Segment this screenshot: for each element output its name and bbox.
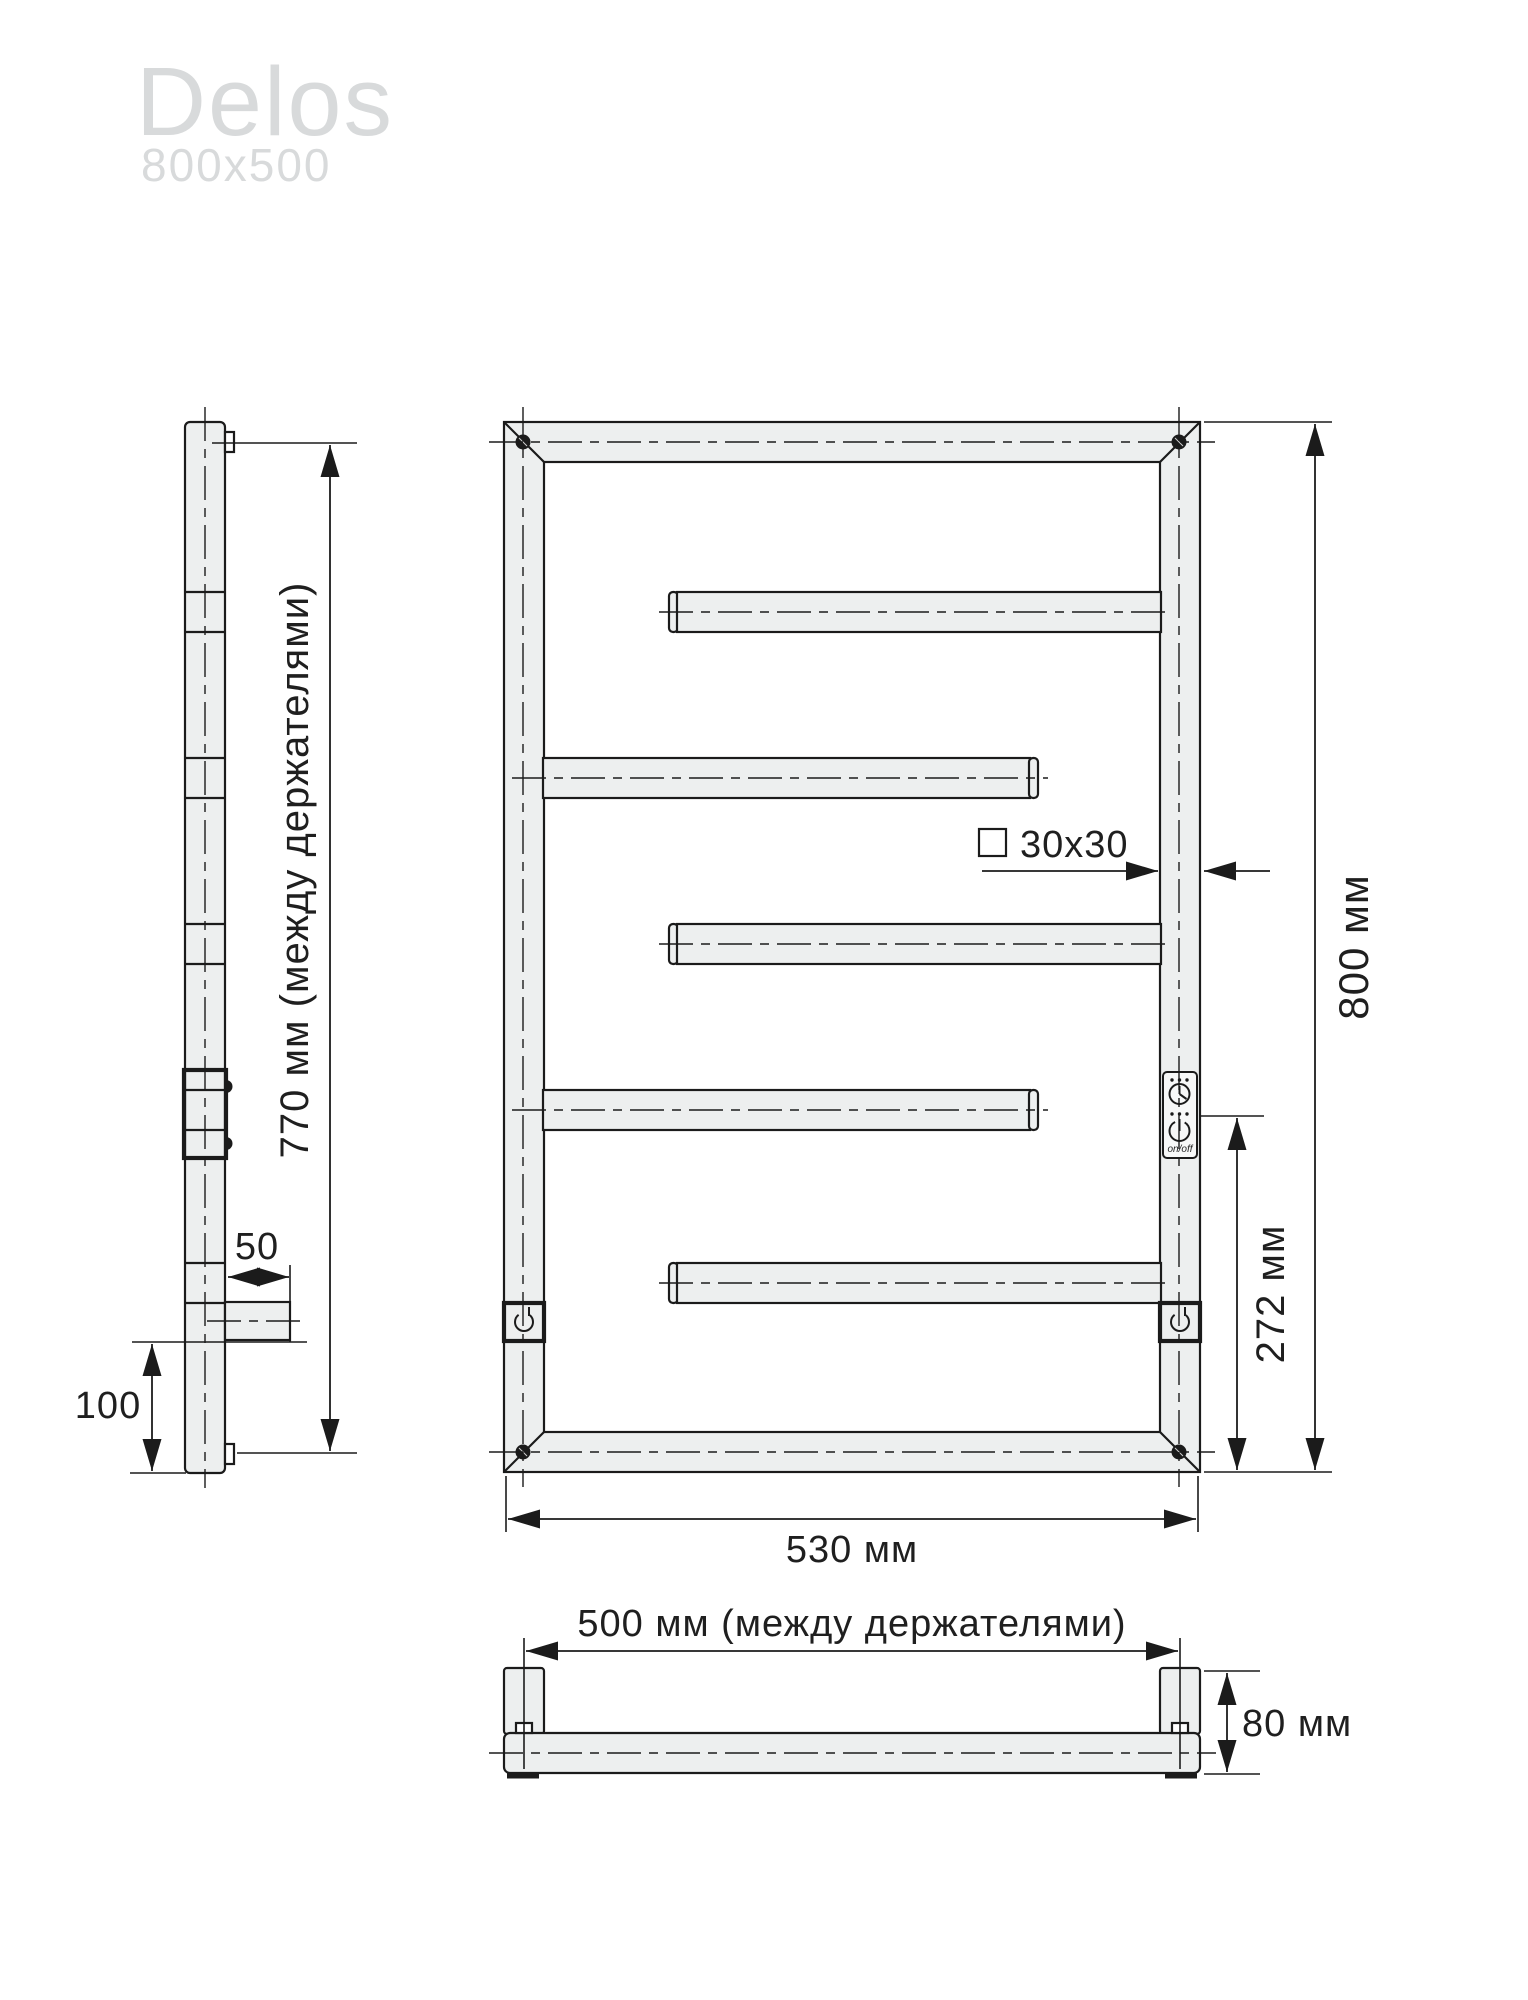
dimension-label-272: 272 мм — [1249, 1225, 1293, 1364]
holder-tab-top — [225, 432, 234, 452]
tube-size-callout: 30x30 — [979, 824, 1270, 871]
front-view: on/off — [489, 407, 1215, 1487]
bracket-screw-bump-icon — [226, 1080, 233, 1093]
dimension-label-80: 80 мм — [1242, 1703, 1352, 1745]
title-block: Delos 800x500 — [136, 47, 394, 191]
bottom-view — [489, 1638, 1216, 1776]
dimension-label-100: 100 — [75, 1385, 141, 1427]
dimension-label-50: 50 — [235, 1226, 279, 1268]
tube-size-label: 30x30 — [1020, 824, 1129, 866]
product-size: 800x500 — [141, 139, 332, 191]
onoff-label: on/off — [1167, 1144, 1193, 1155]
dimension-label-770: 770 мм (между держателями) — [273, 582, 317, 1159]
drawing-page: Delos 800x500 — [0, 0, 1528, 2000]
control-panel: on/off — [1163, 1072, 1197, 1158]
dimension-label-800: 800 мм — [1330, 874, 1377, 1020]
bracket-screw-bump-icon — [226, 1137, 233, 1150]
holder-tab-bottom — [225, 1444, 234, 1464]
dimension-label-530: 530 мм — [786, 1529, 918, 1571]
technical-drawing: Delos 800x500 — [0, 0, 1528, 2000]
dimension-label-500: 500 мм (между держателями) — [577, 1603, 1126, 1645]
